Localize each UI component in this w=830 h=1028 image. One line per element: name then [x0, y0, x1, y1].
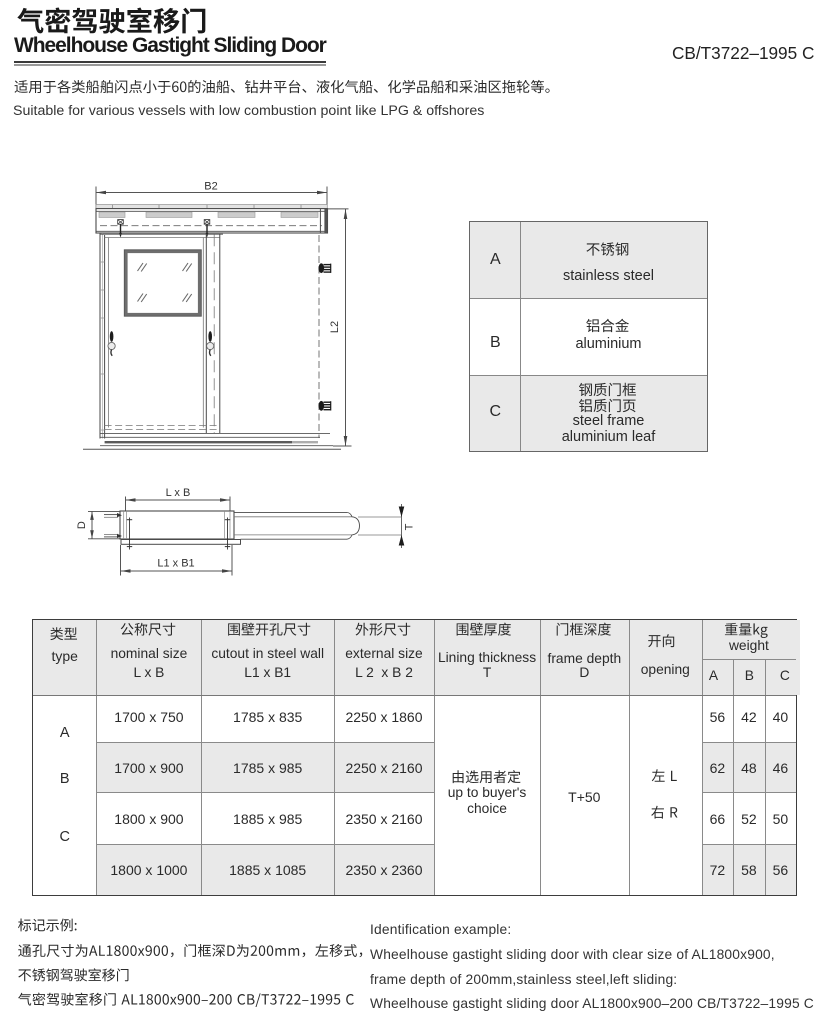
- svg-text:B2: B2: [204, 181, 217, 193]
- svg-text:D: D: [76, 521, 88, 529]
- svg-text:L2: L2: [329, 321, 341, 333]
- svg-text:T: T: [404, 523, 416, 530]
- svg-text:L1 x B1: L1 x B1: [157, 558, 194, 570]
- svg-text:L x B: L x B: [166, 487, 191, 499]
